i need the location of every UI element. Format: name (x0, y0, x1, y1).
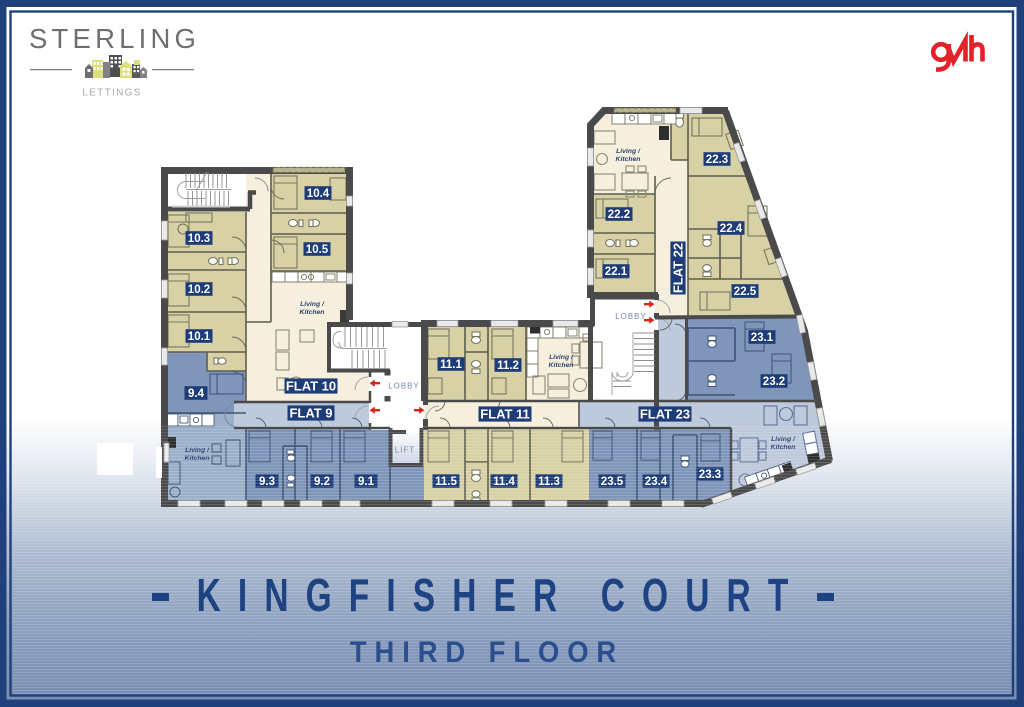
svg-text:Kitchen: Kitchen (549, 362, 574, 369)
svg-text:23.2: 23.2 (763, 376, 785, 388)
svg-text:FLAT 22: FLAT 22 (670, 243, 685, 293)
svg-text:LOBBY: LOBBY (615, 312, 647, 321)
svg-text:FLAT 23: FLAT 23 (640, 406, 690, 421)
svg-text:10.5: 10.5 (306, 244, 329, 256)
svg-text:22.3: 22.3 (706, 154, 728, 166)
svg-text:Kitchen: Kitchen (616, 156, 641, 163)
svg-text:11.2: 11.2 (497, 360, 519, 372)
svg-text:Living /: Living / (300, 301, 325, 308)
svg-text:22.4: 22.4 (720, 223, 743, 235)
svg-text:FLAT 9: FLAT 9 (289, 405, 332, 420)
svg-text:10.2: 10.2 (188, 284, 210, 296)
svg-text:KINGFISHER COURT: KINGFISHER COURT (197, 569, 806, 622)
svg-text:Living /: Living / (549, 354, 574, 361)
svg-text:Kitchen: Kitchen (300, 309, 325, 316)
svg-text:10.1: 10.1 (188, 331, 211, 343)
svg-text:STERLING: STERLING (29, 23, 200, 54)
svg-text:22.5: 22.5 (734, 286, 757, 298)
svg-text:22.2: 22.2 (608, 209, 630, 221)
svg-text:FLAT 11: FLAT 11 (480, 406, 530, 421)
svg-text:22.1: 22.1 (605, 266, 628, 278)
svg-text:LETTINGS: LETTINGS (82, 88, 141, 99)
svg-text:10.4: 10.4 (307, 188, 330, 200)
svg-text:10.3: 10.3 (188, 233, 210, 245)
svg-text:LOBBY: LOBBY (388, 382, 420, 391)
svg-text:THIRD FLOOR: THIRD FLOOR (350, 636, 624, 669)
svg-text:FLAT 10: FLAT 10 (286, 378, 336, 393)
svg-text:Living /: Living / (616, 148, 641, 155)
svg-text:9.4: 9.4 (188, 388, 205, 400)
svg-text:11.1: 11.1 (440, 359, 462, 371)
svg-text:23.1: 23.1 (751, 332, 774, 344)
